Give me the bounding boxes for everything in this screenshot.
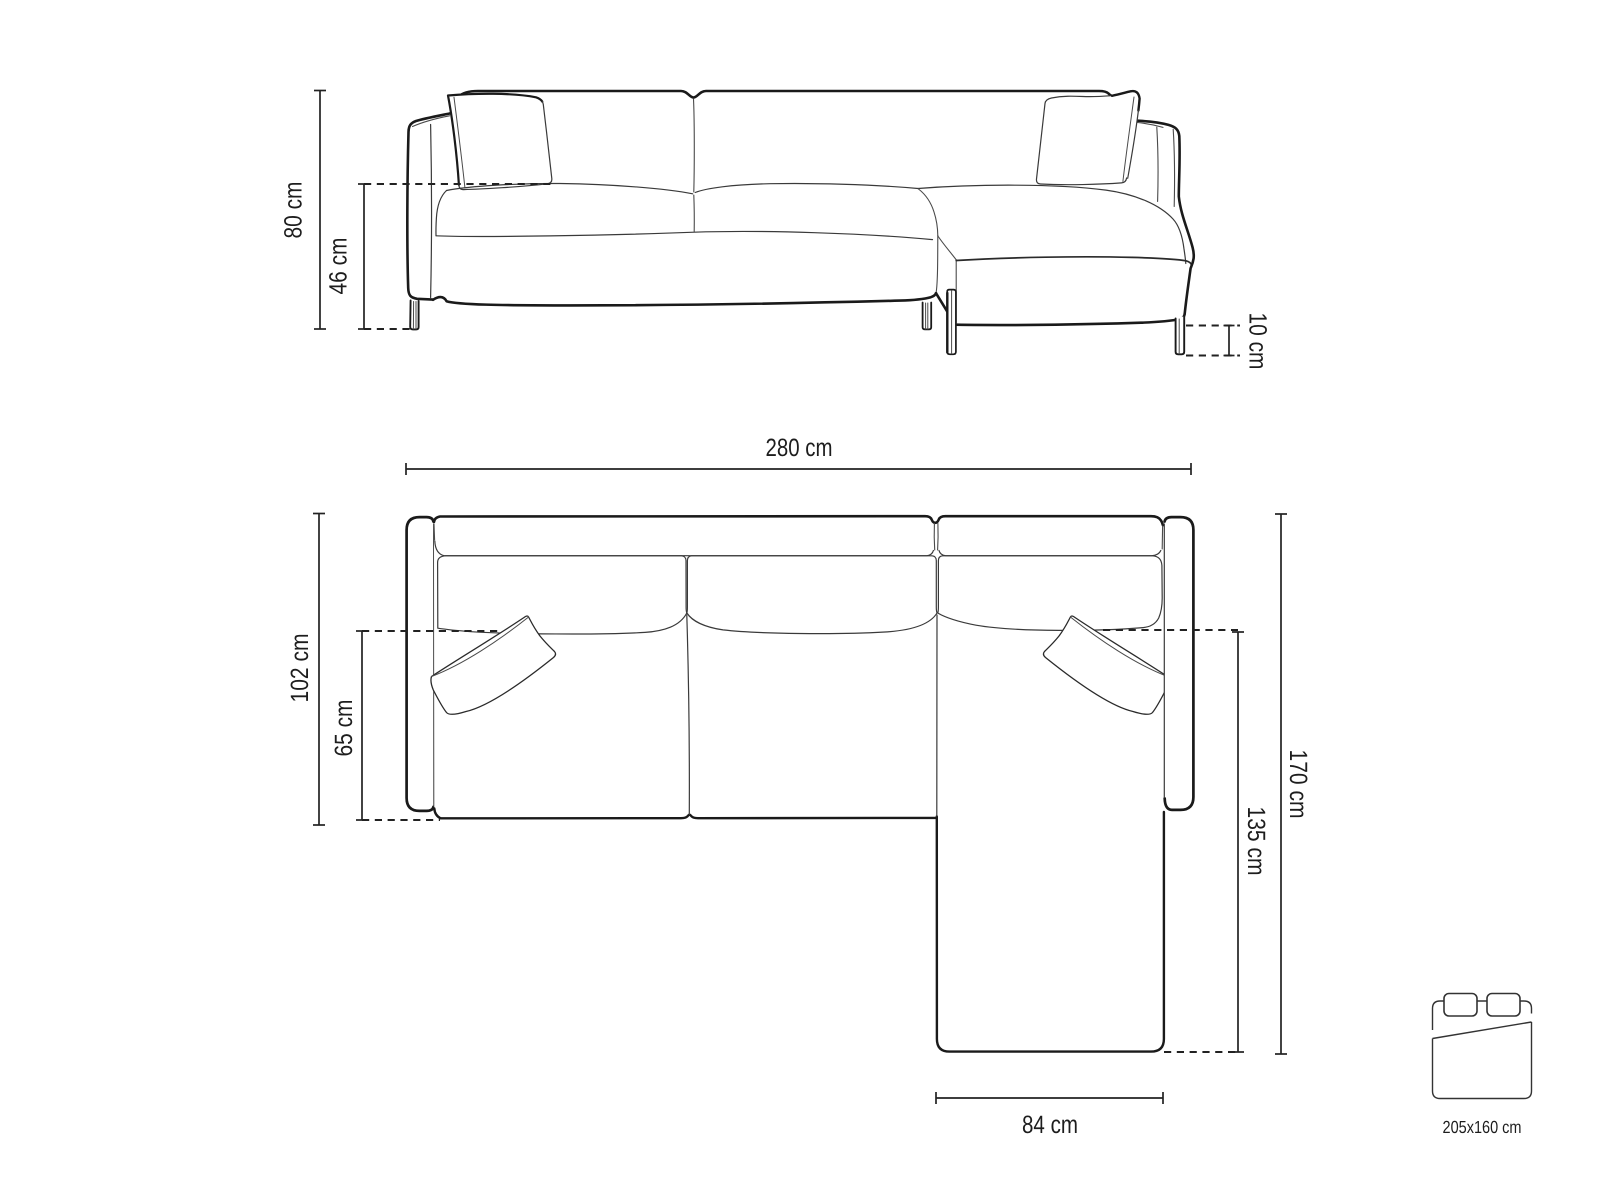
svg-text:135 cm: 135 cm [1242,807,1270,876]
svg-text:65 cm: 65 cm [330,700,358,757]
svg-text:84 cm: 84 cm [1022,1111,1078,1139]
svg-text:280 cm: 280 cm [766,434,833,462]
svg-text:10 cm: 10 cm [1244,313,1272,370]
svg-text:80 cm: 80 cm [280,182,308,239]
svg-text:102 cm: 102 cm [286,634,314,703]
svg-text:205x160 cm: 205x160 cm [1443,1117,1522,1137]
svg-text:170 cm: 170 cm [1284,750,1312,819]
svg-text:46 cm: 46 cm [325,238,353,295]
